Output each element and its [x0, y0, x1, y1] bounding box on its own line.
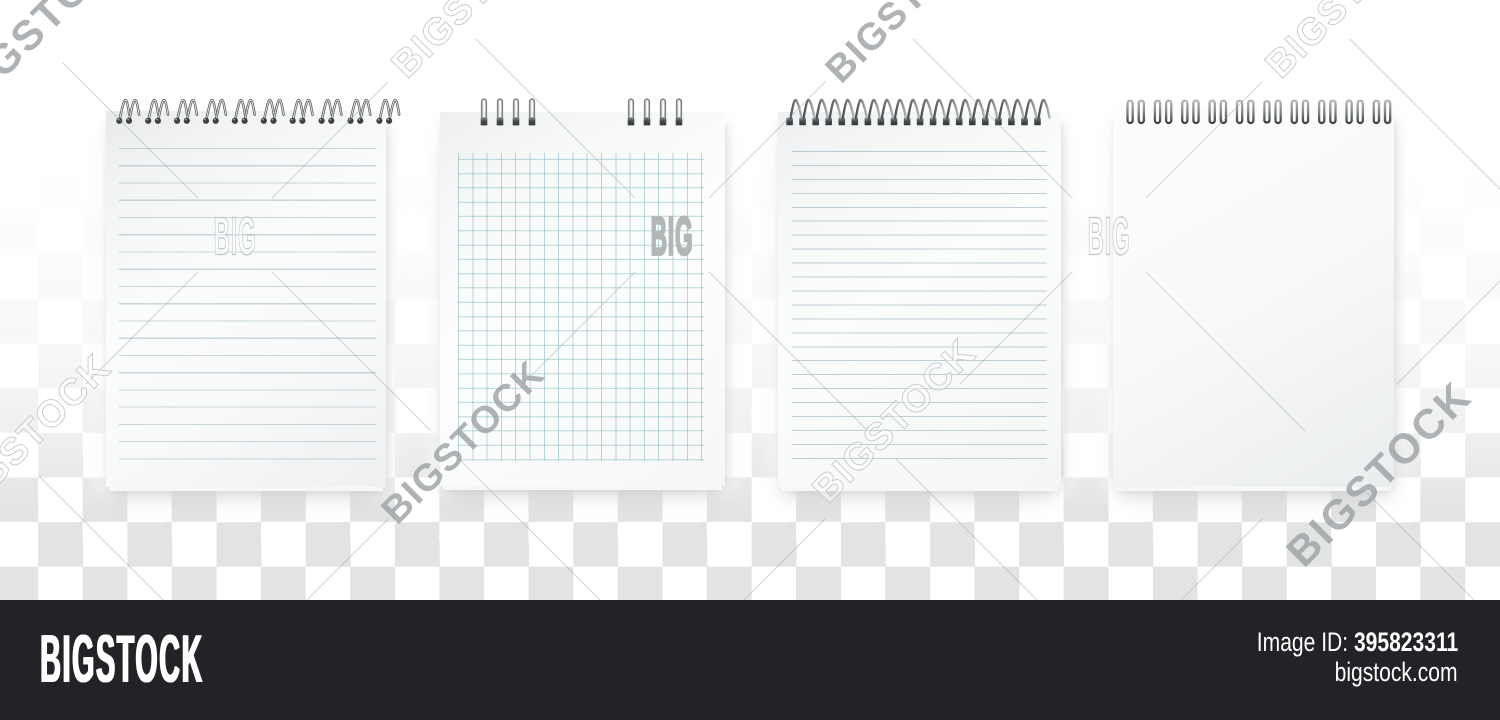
svg-text:BIG: BIG — [651, 206, 694, 266]
svg-text:BIGSTOCK: BIGSTOCK — [374, 353, 554, 533]
svg-text:BIGSTOCK: BIGSTOCK — [1277, 372, 1481, 576]
svg-text:BIG: BIG — [214, 206, 257, 266]
svg-text:BIGSTOCK: BIGSTOCK — [805, 332, 985, 512]
svg-text:BIGSTOCK: BIGSTOCK — [1258, 0, 1438, 86]
svg-text:BIGSTOCK: BIGSTOCK — [384, 0, 564, 86]
svg-text:BIGSTOCK: BIGSTOCK — [0, 0, 147, 120]
svg-text:BIGSTOCK: BIGSTOCK — [818, 0, 998, 91]
svg-text:BIGSTOCK: BIGSTOCK — [0, 347, 119, 527]
svg-text:BIG: BIG — [1088, 206, 1131, 266]
